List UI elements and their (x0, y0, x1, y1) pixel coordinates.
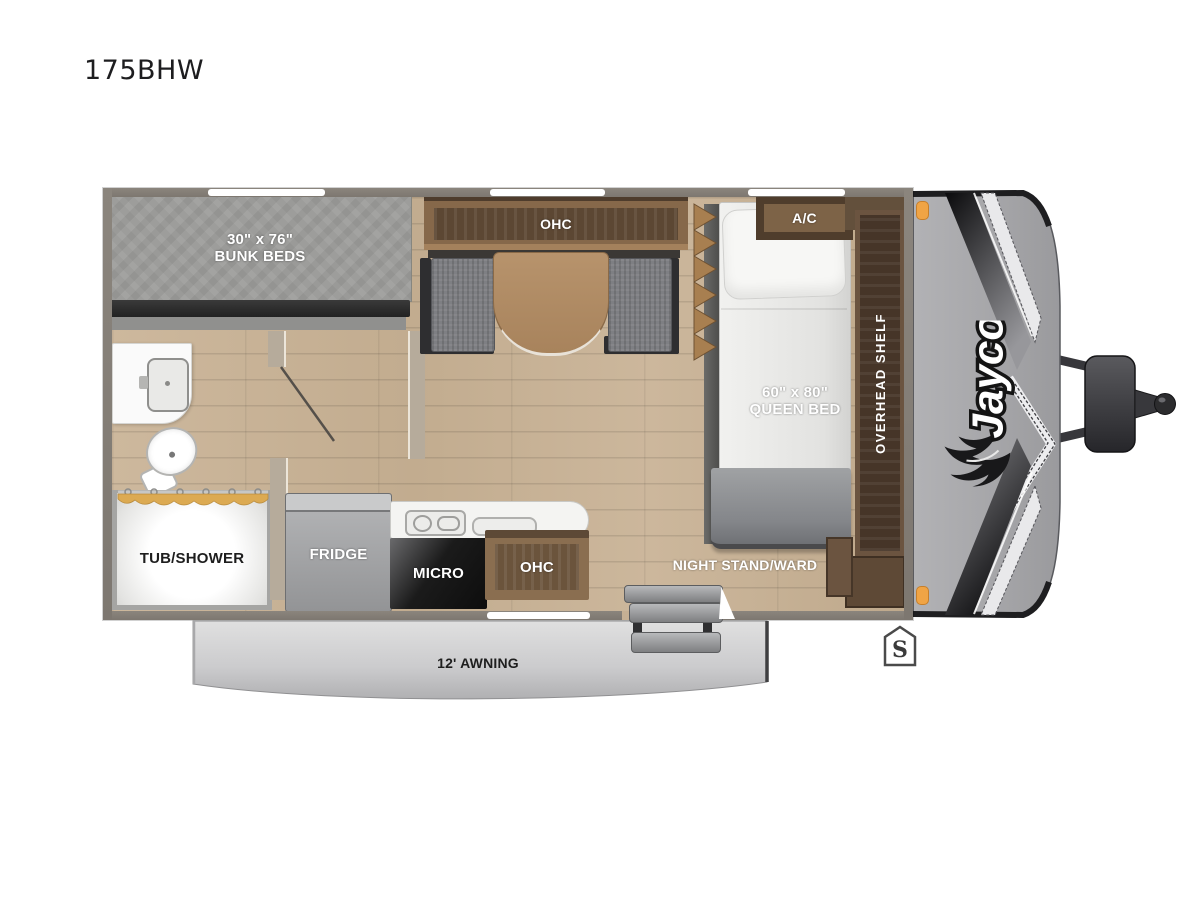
micro-label: MICRO (413, 565, 464, 582)
marker-light-top (916, 201, 929, 220)
bunk-name-label: BUNK BEDS (215, 248, 306, 265)
page-title: 175BHW (84, 55, 204, 86)
overhead-shelf: OVERHEAD SHELF (855, 210, 905, 556)
kitchen-ohc-panel: OHC (495, 544, 579, 590)
entry-step-2 (629, 603, 723, 623)
entry-step-1 (624, 585, 723, 603)
wall-left (103, 188, 112, 620)
dinette-ohc-label: OHC (540, 216, 572, 233)
kitchen-ohc: OHC (485, 530, 589, 600)
bunk-size-label: 30" x 76" (227, 231, 293, 248)
stove (405, 510, 466, 536)
bunk-base (112, 317, 406, 330)
window-bunk (208, 189, 325, 196)
bed-sheet-fold (721, 308, 847, 310)
propane-box (1085, 356, 1135, 452)
sink-drain (165, 381, 170, 386)
fridge-lid (286, 494, 391, 512)
spare-tire-badge: S (882, 624, 918, 668)
coupler-highlight (1159, 398, 1166, 403)
night-stand-label: NIGHT STAND/WARD (656, 557, 834, 574)
coupler-ball (1155, 394, 1176, 415)
floorplan-diagram: 175BHW (0, 0, 1200, 900)
bunk-rail (108, 300, 410, 317)
microwave: MICRO (390, 538, 487, 609)
tub-shower-label: TUB/SHOWER (140, 550, 245, 567)
jayco-bird-icon (945, 433, 1011, 487)
dinette-table (493, 252, 609, 356)
overhead-shelf-label: OVERHEAD SHELF (873, 313, 888, 454)
foot-wardrobe (845, 556, 905, 608)
ac-panel: A/C (764, 204, 845, 232)
window-dinette (490, 189, 605, 196)
fridge: FRIDGE (285, 493, 392, 612)
queen-bed-label: 60" x 80" QUEEN BED (725, 384, 865, 418)
dinette-ohc: OHC (424, 196, 688, 250)
bunk-beds: 30" x 76" BUNK BEDS (108, 194, 412, 302)
ac-label: A/C (792, 210, 817, 227)
spare-letter: S (892, 637, 908, 663)
sink-faucet-icon (139, 376, 148, 389)
window-kitchen (487, 612, 590, 619)
jayco-wordmark: Jayco (964, 321, 1013, 439)
wall-right (904, 188, 913, 620)
queen-size-label: 60" x 80" (725, 384, 865, 401)
entry-step-3 (631, 632, 721, 653)
ac-unit: A/C (756, 196, 853, 240)
kitchen-ohc-label: OHC (520, 559, 554, 576)
bathroom-wall-upper (268, 331, 286, 367)
jayco-logo: Jayco (915, 321, 1040, 491)
window-bed (748, 189, 845, 196)
stove-burner-right (437, 516, 460, 531)
awning-label: 12' AWNING (398, 655, 558, 672)
dinette-bench-right (608, 258, 672, 352)
floorplan: 30" x 76" BUNK BEDS TUB/SHOWER FRIDGE (103, 188, 913, 620)
dinette-bench-left (431, 258, 495, 352)
tub-shower: TUB/SHOWER (112, 490, 272, 610)
queen-name-label: QUEEN BED (725, 401, 865, 418)
marker-light-bottom (916, 586, 929, 605)
stove-burner-left (413, 515, 432, 532)
fridge-label: FRIDGE (286, 546, 391, 563)
dinette-ohc-panel: OHC (434, 208, 678, 240)
